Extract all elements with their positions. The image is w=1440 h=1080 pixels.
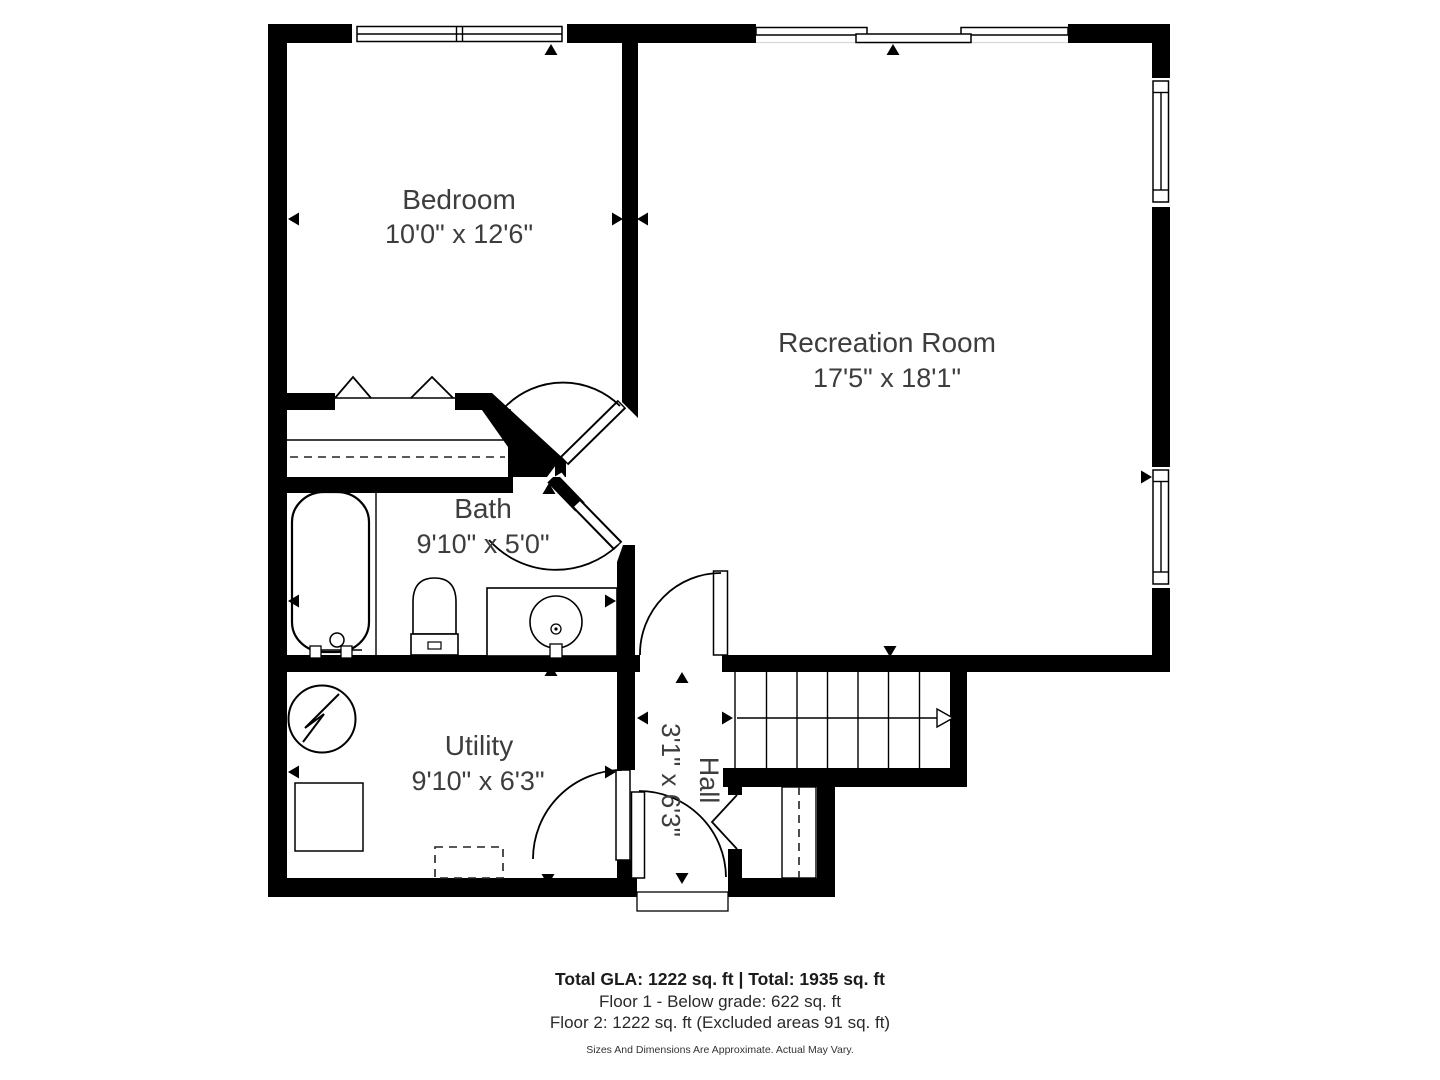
utility-dims: 9'10" x 6'3" (411, 766, 544, 796)
bath-dims: 9'10" x 5'0" (416, 529, 549, 559)
entry-door-leaf (632, 792, 645, 878)
marker-hall-right (722, 712, 733, 725)
wall-bedroom-bottom-a (268, 393, 335, 410)
recreation-dims: 17'5" x 18'1" (813, 363, 961, 393)
rec-hall-door-arc (640, 573, 721, 655)
recreation-label: Recreation Room (778, 327, 996, 358)
stairs (735, 672, 953, 768)
wall-right-b (1152, 205, 1170, 469)
footer-floor2: Floor 2: 1222 sq. ft (Excluded areas 91 … (550, 1013, 890, 1032)
bedroom-closet (287, 409, 510, 477)
electrical-panel-icon (289, 686, 356, 753)
footer-disclaimer: Sizes And Dimensions Are Approximate. Ac… (586, 1044, 853, 1056)
bedroom-window (352, 22, 567, 45)
wall-left (268, 24, 287, 897)
footer-totals: Total GLA: 1222 sq. ft | Total: 1935 sq.… (555, 969, 885, 989)
wall-right-a (1152, 43, 1170, 80)
marker-hall-top (676, 672, 689, 683)
marker-hall-bottom (676, 873, 689, 884)
rec-window-right (961, 28, 1068, 36)
bedroom-door-arc (506, 383, 620, 406)
wall-bath-bottom (268, 655, 640, 672)
marker-rec-top (887, 44, 900, 55)
hall-label: Hall (694, 757, 724, 804)
wall-door-hinge-post (552, 478, 580, 507)
toilet (411, 578, 458, 655)
recreation-window-top (756, 22, 1068, 45)
footer-floor1: Floor 1 - Below grade: 622 sq. ft (599, 992, 841, 1011)
marker-utility-right (605, 766, 616, 779)
rec-window-middle (856, 34, 971, 43)
wall-top-right (1068, 24, 1170, 43)
utility-label: Utility (445, 730, 513, 761)
bath-label: Bath (454, 493, 512, 524)
marker-rec-right (1141, 471, 1152, 484)
wall-closet-right (817, 770, 835, 897)
marker-hall-left (637, 712, 648, 725)
rec-window-left (756, 28, 867, 36)
sink-vanity (487, 588, 617, 658)
floor-plan-page: Bedroom 10'0" x 12'6" Recreation Room 17… (0, 0, 1440, 1080)
marker-bedroom-top (545, 44, 558, 55)
wall-divider-bedroom-rec (622, 43, 638, 402)
bedroom-closet-bifold-doors (335, 377, 455, 398)
wall-rec-bottom (722, 655, 1170, 672)
wall-bottom-left (268, 878, 637, 897)
wall-bath-top (268, 477, 513, 493)
bedroom-dims: 10'0" x 12'6" (385, 219, 533, 249)
hall-dims: 3'1" x 6'3" (656, 723, 686, 837)
wall-stairs-bottom (723, 768, 967, 787)
marker-rec-left (637, 213, 648, 226)
bedroom-label: Bedroom (402, 184, 516, 215)
rec-hall-door-leaf (714, 571, 728, 655)
recreation-window-right-upper (1152, 78, 1170, 207)
utility-door (533, 770, 630, 860)
marker-utility-left (288, 766, 299, 779)
wall-hall-left-a (617, 672, 635, 770)
wall-bath-right (617, 545, 635, 672)
wall-diagonal-junction (470, 393, 566, 477)
utility-door-leaf (616, 770, 630, 860)
utility-appliance (295, 783, 363, 851)
wall-hall-right-b (728, 849, 742, 880)
entry-door-sill (637, 892, 728, 911)
rec-hall-door (640, 571, 728, 655)
footer: Total GLA: 1222 sq. ft | Total: 1935 sq.… (550, 969, 890, 1056)
marker-bedroom-right (612, 213, 623, 226)
wall-stairs-right (950, 672, 967, 787)
utility-appliance-dashed (435, 847, 503, 878)
wall-top-mid (562, 24, 756, 43)
utility-door-arc (533, 770, 622, 859)
understair-closet (782, 787, 816, 878)
recreation-window-right-lower (1152, 467, 1170, 588)
floor-plan: Bedroom 10'0" x 12'6" Recreation Room 17… (0, 0, 1440, 1080)
bathtub (292, 492, 369, 658)
marker-bedroom-left (288, 213, 299, 226)
room-labels: Bedroom 10'0" x 12'6" Recreation Room 17… (385, 184, 996, 837)
